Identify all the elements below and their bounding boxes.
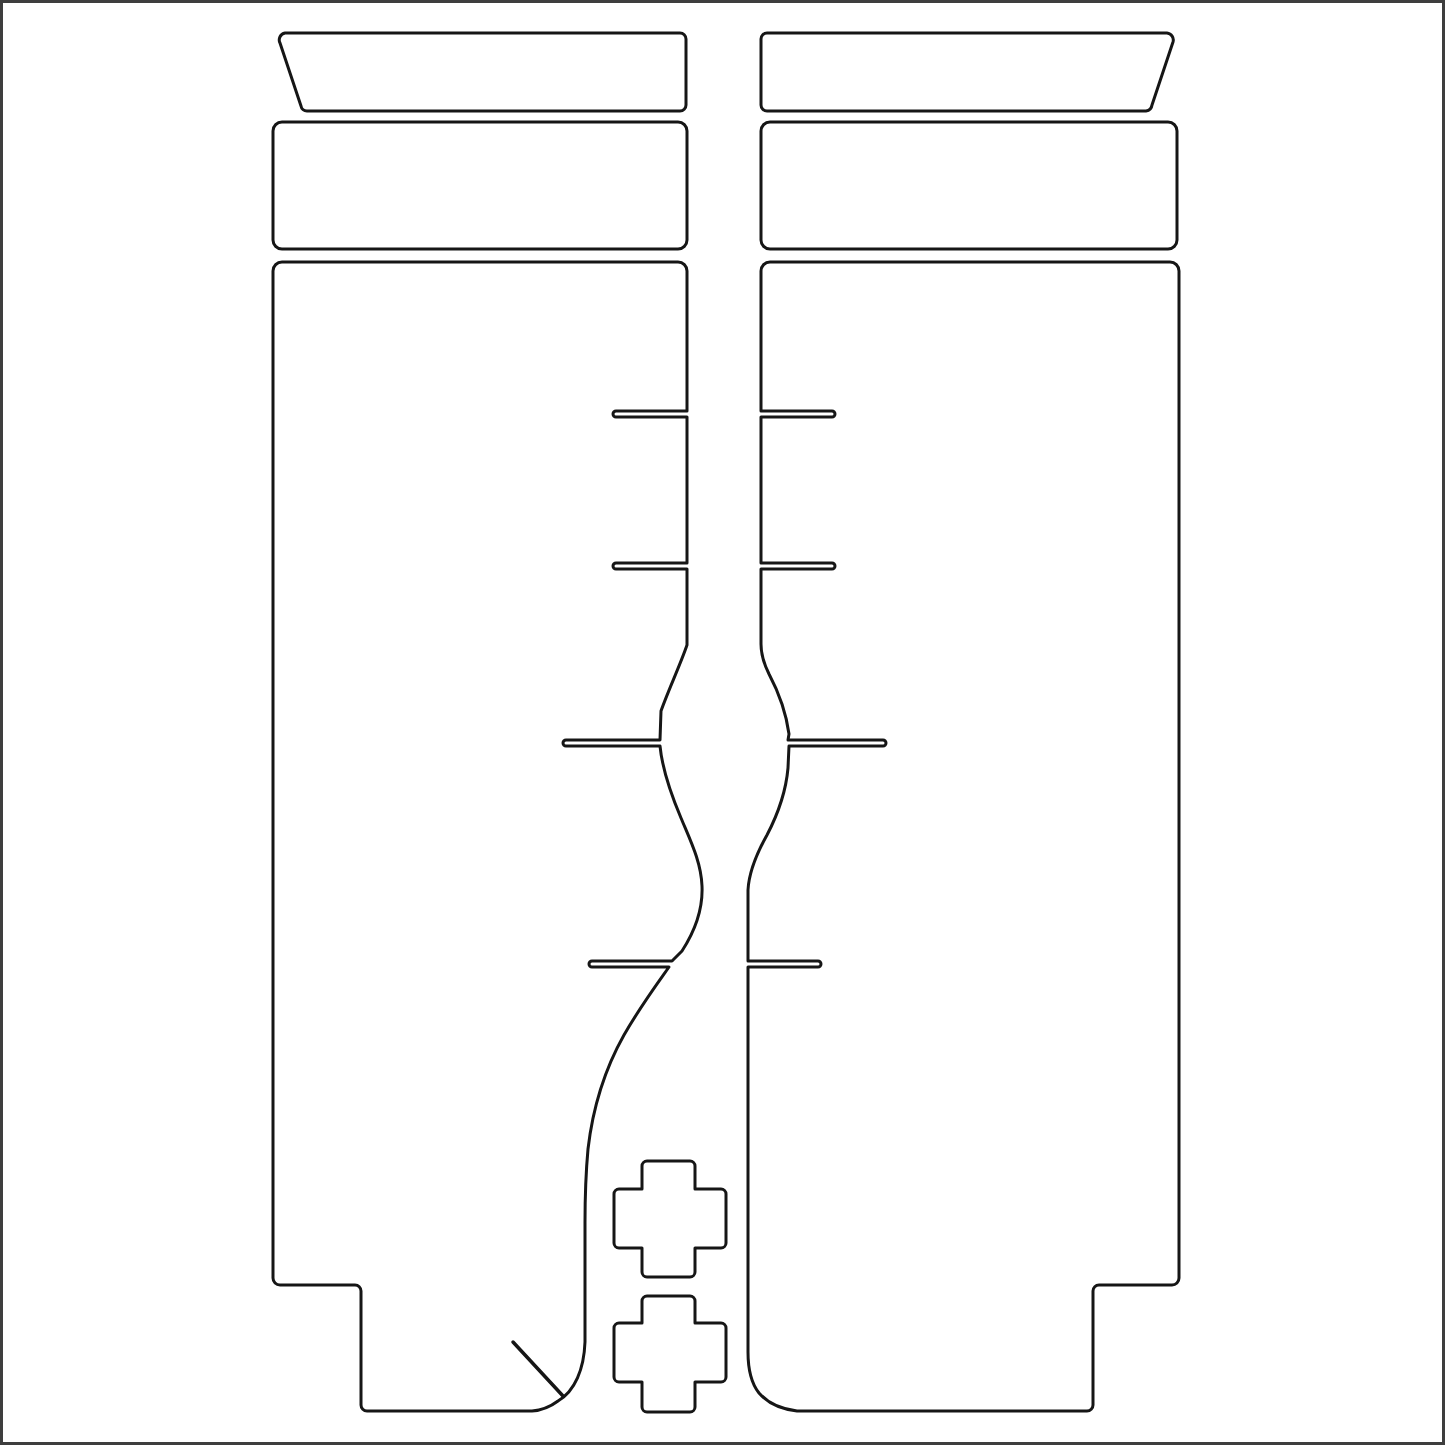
upper-band-left-outline xyxy=(273,122,687,249)
cross-patch-upper-outline xyxy=(614,1161,726,1277)
top-cap-left-outline xyxy=(279,33,686,111)
upper-band-right-outline xyxy=(761,122,1177,249)
cross-patch-lower-outline xyxy=(614,1296,726,1412)
die-cut-template-svg xyxy=(0,0,1445,1445)
template-sheet-page xyxy=(0,0,1445,1445)
main-panel-right-outline xyxy=(748,262,1179,1411)
top-cap-right-outline xyxy=(761,33,1173,111)
